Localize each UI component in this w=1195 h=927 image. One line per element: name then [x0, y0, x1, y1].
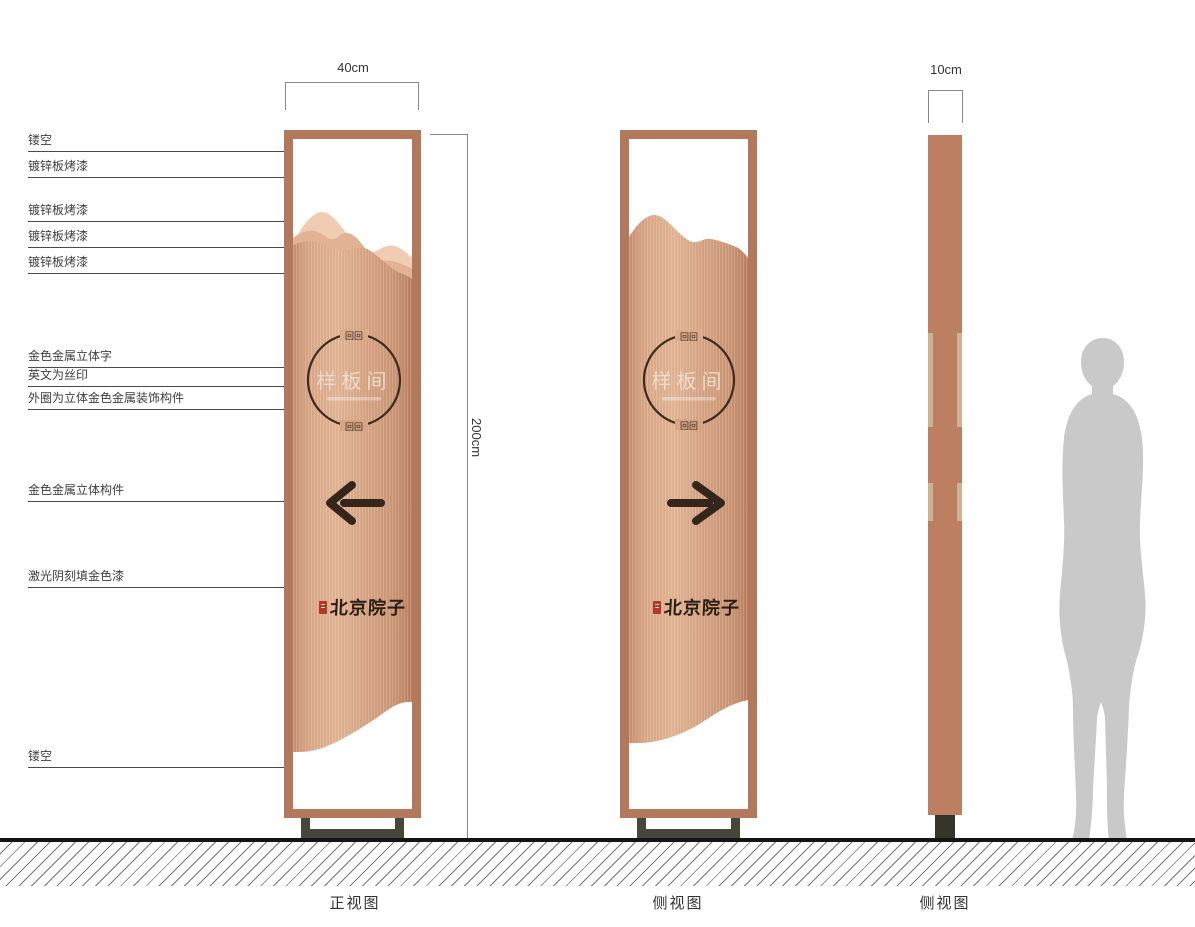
- side-protrusion-strip: [928, 333, 933, 427]
- annotation-label: 镂空: [28, 749, 52, 763]
- sign-front-panel: 回回 回回 样板间: [293, 139, 412, 809]
- annotation-galvanized-2: 镀锌板烤漆: [28, 203, 88, 217]
- english-silkscreen-text: [327, 397, 381, 401]
- fret-ornament-top-icon: 回回: [680, 332, 698, 342]
- leader-line: [28, 247, 293, 248]
- leader-line: [28, 767, 305, 768]
- view-label-side: 侧视图: [905, 892, 985, 913]
- brand-calligraphy-back: 北京院子: [637, 594, 755, 620]
- side-protrusion-strip: [928, 483, 933, 521]
- annotation-label: 镀锌板烤漆: [28, 159, 88, 173]
- annotation-label: 镂空: [28, 133, 52, 147]
- annotation-label: 镀锌板烤漆: [28, 203, 88, 217]
- fret-ornament-bottom-icon: 回回: [680, 421, 698, 431]
- sign-back-panel: 回回 回回 样板间: [629, 139, 748, 809]
- annotation-galvanized-1: 镀锌板烤漆: [28, 159, 88, 173]
- annotation-label: 英文为丝印: [28, 368, 88, 382]
- annotation-label: 镀锌板烤漆: [28, 229, 88, 243]
- annotation-gold-letters: 金色金属立体字: [28, 349, 112, 363]
- brushed-texture: [629, 215, 748, 743]
- leader-line: [28, 151, 305, 152]
- annotation-gold-component: 金色金属立体构件: [28, 483, 124, 497]
- pedestal-bar: [637, 829, 740, 838]
- red-seal-icon: [319, 601, 327, 614]
- ground-hatch: [0, 842, 1195, 886]
- leader-line: [28, 177, 287, 178]
- dimension-thickness-bracket: [928, 90, 963, 123]
- english-silkscreen-text: [662, 397, 716, 401]
- view-label-front: 正视图: [315, 892, 395, 913]
- annotation-outer-ring: 外圈为立体金色金属装饰构件: [28, 391, 184, 405]
- dimension-height-label: 200cm: [469, 418, 484, 457]
- dimension-height-line: [467, 134, 468, 838]
- view-label-back: 侧视图: [638, 892, 718, 913]
- leader-line: [28, 273, 295, 274]
- sign-side-profile: [928, 135, 962, 815]
- annotation-english-silkscreen: 英文为丝印: [28, 368, 88, 382]
- annotation-hollow-top: 镂空: [28, 133, 52, 147]
- annotation-galvanized-4: 镀锌板烤漆: [28, 255, 88, 269]
- leader-line: [28, 221, 323, 222]
- annotation-hollow-bottom: 镂空: [28, 749, 52, 763]
- spec-drawing-canvas: 镂空 镀锌板烤漆 镀锌板烤漆 镀锌板烤漆 镀锌板烤漆 金色金属立体字 英文为丝印…: [0, 0, 1195, 927]
- dimension-width-bracket: [285, 82, 419, 110]
- brand-text: 北京院子: [329, 594, 406, 620]
- plaque-text: 样板间: [652, 370, 727, 393]
- annotation-laser-engraving: 激光阴刻填金色漆: [28, 569, 124, 583]
- fret-ornament-top-icon: 回回: [345, 331, 363, 341]
- red-seal-icon: [653, 601, 661, 614]
- annotation-label: 激光阴刻填金色漆: [28, 569, 124, 583]
- annotation-label: 镀锌板烤漆: [28, 255, 88, 269]
- fret-ornament-bottom-icon: 回回: [345, 422, 363, 432]
- annotation-label: 外圈为立体金色金属装饰构件: [28, 391, 184, 405]
- side-protrusion-strip: [957, 483, 962, 521]
- annotation-galvanized-3: 镀锌板烤漆: [28, 229, 88, 243]
- dimension-height-tick: [430, 134, 467, 135]
- human-figure-silhouette: [1035, 336, 1170, 846]
- side-base-block: [935, 815, 955, 839]
- brand-calligraphy-front: 北京院子: [303, 594, 421, 620]
- annotation-label: 金色金属立体构件: [28, 483, 124, 497]
- side-protrusion-strip: [957, 333, 962, 427]
- sign-back-view: 回回 回回 样板间: [620, 130, 757, 818]
- annotation-label: 金色金属立体字: [28, 349, 112, 363]
- plaque-text: 样板间: [317, 370, 392, 393]
- pedestal-bar: [301, 829, 404, 838]
- dimension-width-label: 40cm: [286, 60, 420, 75]
- brand-text: 北京院子: [663, 594, 740, 620]
- sign-front-view: 回回 回回 样板间: [284, 130, 421, 818]
- dimension-thickness-label: 10cm: [911, 62, 981, 77]
- brushed-texture: [293, 241, 412, 752]
